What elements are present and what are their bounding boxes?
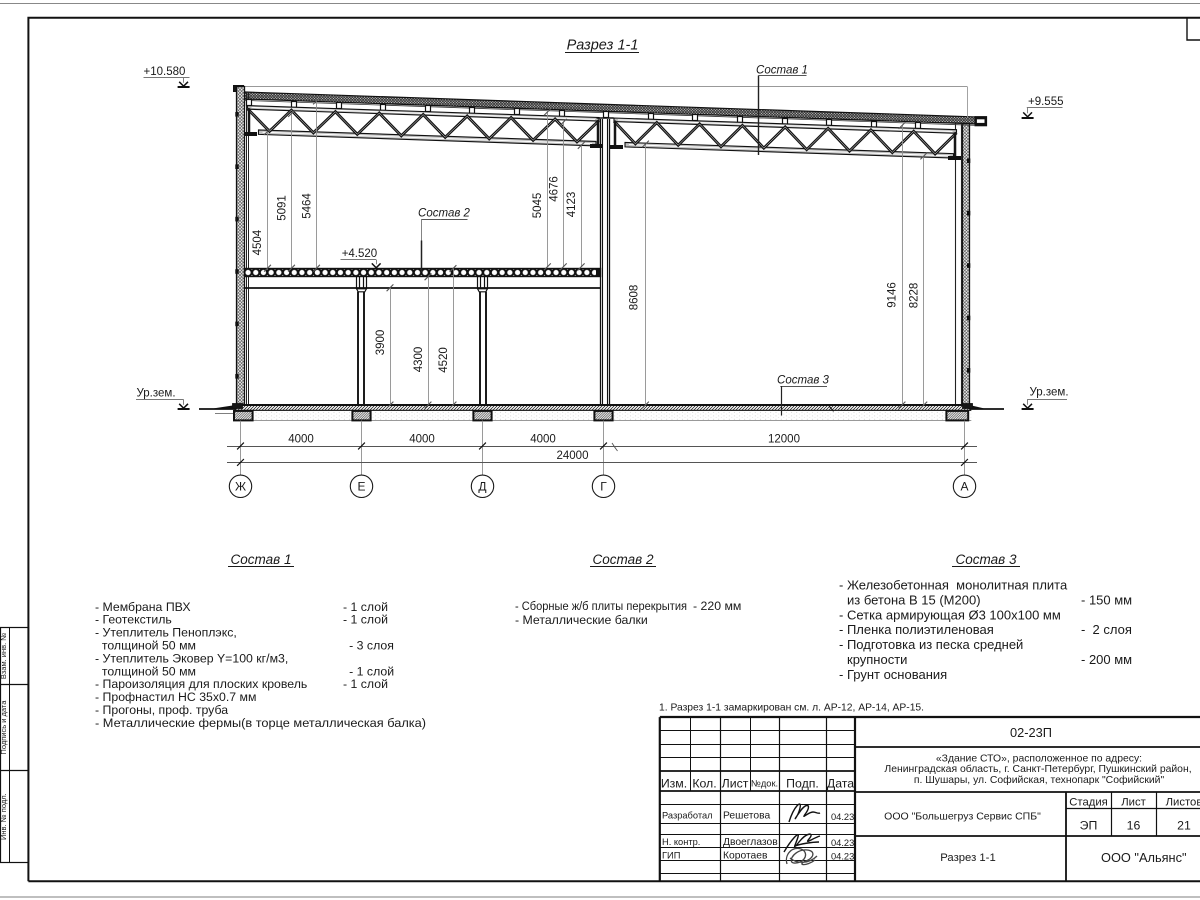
svg-text:4000: 4000: [409, 434, 435, 446]
svg-text:- Сетка армирующая Ø3 100х100: - Сетка армирующая Ø3 100х100 мм: [839, 607, 1061, 622]
svg-text:04.23: 04.23: [831, 851, 854, 861]
svg-text:- Железобетонная монолитная п: - Железобетонная монолитная плита: [839, 578, 1068, 593]
svg-text:8228: 8228: [909, 283, 921, 309]
svg-text:24000: 24000: [557, 450, 589, 462]
svg-text:- Подготовка из песка средней: - Подготовка из песка средней: [839, 637, 1023, 652]
svg-text:- 1 слой: - 1 слой: [343, 600, 388, 614]
svg-text:8608: 8608: [629, 285, 641, 311]
svg-text:- Утеплитель Эковер Y=100 кг/м: - Утеплитель Эковер Y=100 кг/м3,: [95, 651, 288, 665]
svg-text:Д: Д: [478, 480, 486, 494]
svg-text:№док.: №док.: [751, 779, 778, 789]
svg-text:- Прогоны, проф. труба: - Прогоны, проф. труба: [95, 703, 228, 717]
svg-text:5091: 5091: [277, 195, 289, 221]
svg-text:ЭП: ЭП: [1080, 819, 1098, 833]
svg-text:Е: Е: [357, 480, 365, 494]
svg-text:Лист: Лист: [1121, 796, 1146, 808]
svg-text:Стадия: Стадия: [1069, 796, 1108, 808]
svg-text:Состав 1: Состав 1: [756, 65, 808, 77]
svg-text:Состав 2: Состав 2: [593, 552, 654, 567]
svg-text:- Профнастил НС 35х0.7 мм: - Профнастил НС 35х0.7 мм: [95, 690, 256, 704]
svg-text:Разрез 1-1: Разрез 1-1: [940, 852, 995, 864]
svg-text:04.23: 04.23: [831, 812, 854, 822]
svg-text:- Металлические балки: - Металлические балки: [515, 613, 648, 627]
svg-text:16: 16: [1127, 819, 1141, 833]
svg-text:Состав 3: Состав 3: [777, 374, 829, 386]
svg-text:Ж: Ж: [235, 480, 246, 494]
svg-text:02-23П: 02-23П: [1010, 725, 1052, 740]
svg-text:- Пароизоляция для плоских кро: - Пароизоляция для плоских кровель: [95, 677, 307, 691]
svg-text:Разработал: Разработал: [662, 810, 713, 820]
svg-text:- Пленка полиэтиленовая: - Пленка полиэтиленовая: [839, 622, 994, 637]
svg-text:12000: 12000: [768, 434, 800, 446]
svg-text:Подп.: Подп.: [786, 776, 819, 790]
svg-text:- Сборные ж/б плиты перекрытия: - Сборные ж/б плиты перекрытия: [515, 599, 687, 613]
svg-text:- Металлические фермы(в торце: - Металлические фермы(в торце металличес…: [95, 716, 426, 730]
svg-text:Состав 2: Состав 2: [418, 207, 470, 219]
svg-text:04.23: 04.23: [831, 838, 854, 848]
svg-text:+9.555: +9.555: [1028, 96, 1064, 108]
svg-text:- 1 слой: - 1 слой: [343, 677, 388, 691]
svg-text:- 150 мм: - 150 мм: [1081, 592, 1132, 607]
svg-text:ООО "Большегруз Сервис СПБ": ООО "Большегруз Сервис СПБ": [884, 811, 1041, 823]
svg-text:5045: 5045: [532, 193, 544, 219]
svg-text:4520: 4520: [438, 347, 450, 373]
svg-text:1. Разрез 1-1 замаркирован см.: 1. Разрез 1-1 замаркирован см. л. АР-12,…: [659, 703, 924, 714]
svg-text:- 3 слоя: - 3 слоя: [343, 639, 394, 653]
svg-text:9146: 9146: [887, 282, 899, 308]
svg-text:Подпись и дата: Подпись и дата: [0, 700, 8, 755]
svg-text:ООО "Альянс": ООО "Альянс": [1101, 850, 1187, 865]
svg-text:- 200 мм: - 200 мм: [1081, 652, 1132, 667]
svg-text:Коротаев: Коротаев: [723, 850, 768, 861]
svg-text:- 1 слой: - 1 слой: [343, 664, 394, 678]
svg-text:Состав 3: Состав 3: [956, 552, 1017, 567]
svg-text:Разрез 1-1: Разрез 1-1: [567, 38, 639, 54]
svg-text:Дата: Дата: [827, 776, 854, 790]
svg-text:из бетона В 15 (М200): из бетона В 15 (М200): [847, 592, 981, 607]
svg-text:4000: 4000: [530, 434, 556, 446]
svg-text:Кол.: Кол.: [692, 776, 716, 790]
svg-text:толщиной 50 мм: толщиной 50 мм: [95, 639, 196, 653]
svg-text:4504: 4504: [252, 229, 264, 255]
svg-text:+4.520: +4.520: [342, 248, 378, 260]
svg-text:Лист: Лист: [722, 776, 749, 790]
svg-text:Ур.зем.: Ур.зем.: [137, 388, 176, 400]
svg-text:- Мембрана ПВХ: - Мембрана ПВХ: [95, 600, 191, 614]
svg-text:Решетова: Решетова: [723, 810, 770, 821]
svg-text:- Утеплитель Пеноплэкс,: - Утеплитель Пеноплэкс,: [95, 626, 237, 640]
svg-text:А: А: [960, 480, 968, 494]
svg-text:Инв. № подл.: Инв. № подл.: [0, 793, 8, 840]
svg-text:4000: 4000: [288, 434, 314, 446]
svg-text:толщиной 50 мм: толщиной 50 мм: [95, 664, 196, 678]
svg-text:- Грунт основания: - Грунт основания: [839, 667, 947, 682]
svg-text:Н. контр.: Н. контр.: [662, 837, 700, 847]
svg-text:- 1 слой: - 1 слой: [343, 613, 388, 627]
svg-text:крупности: крупности: [847, 652, 907, 667]
svg-text:Г: Г: [600, 480, 607, 494]
svg-text:4123: 4123: [566, 192, 578, 218]
svg-text:Листов: Листов: [1166, 796, 1200, 808]
svg-text:3900: 3900: [375, 330, 387, 356]
svg-text:«Здание СТО», расположенное по: «Здание СТО», расположенное по адресу:: [936, 753, 1142, 764]
svg-text:Взам. инв. №: Взам. инв. №: [0, 633, 8, 679]
svg-text:Ур.зем.: Ур.зем.: [1030, 387, 1069, 399]
svg-text:+10.580: +10.580: [144, 66, 186, 78]
svg-text:- 220 мм: - 220 мм: [693, 599, 741, 613]
svg-text:- 2 слоя: - 2 слоя: [1081, 622, 1132, 637]
svg-text:ГИП: ГИП: [662, 850, 680, 860]
svg-text:5464: 5464: [302, 193, 314, 219]
svg-text:Ленинградская область, г. Санк: Ленинградская область, г. Санкт-Петербур…: [884, 763, 1191, 775]
svg-text:Состав 1: Состав 1: [231, 552, 292, 567]
svg-text:- Геотекстиль: - Геотекстиль: [95, 613, 172, 627]
svg-text:Двоеглазов: Двоеглазов: [723, 837, 778, 848]
svg-text:4300: 4300: [413, 347, 425, 373]
svg-text:21: 21: [1177, 819, 1191, 833]
svg-text:4676: 4676: [548, 176, 560, 202]
svg-text:Изм.: Изм.: [661, 776, 687, 790]
svg-text:п. Шушары, ул. Софийская, техн: п. Шушары, ул. Софийская, технопарк "Соф…: [914, 774, 1165, 786]
